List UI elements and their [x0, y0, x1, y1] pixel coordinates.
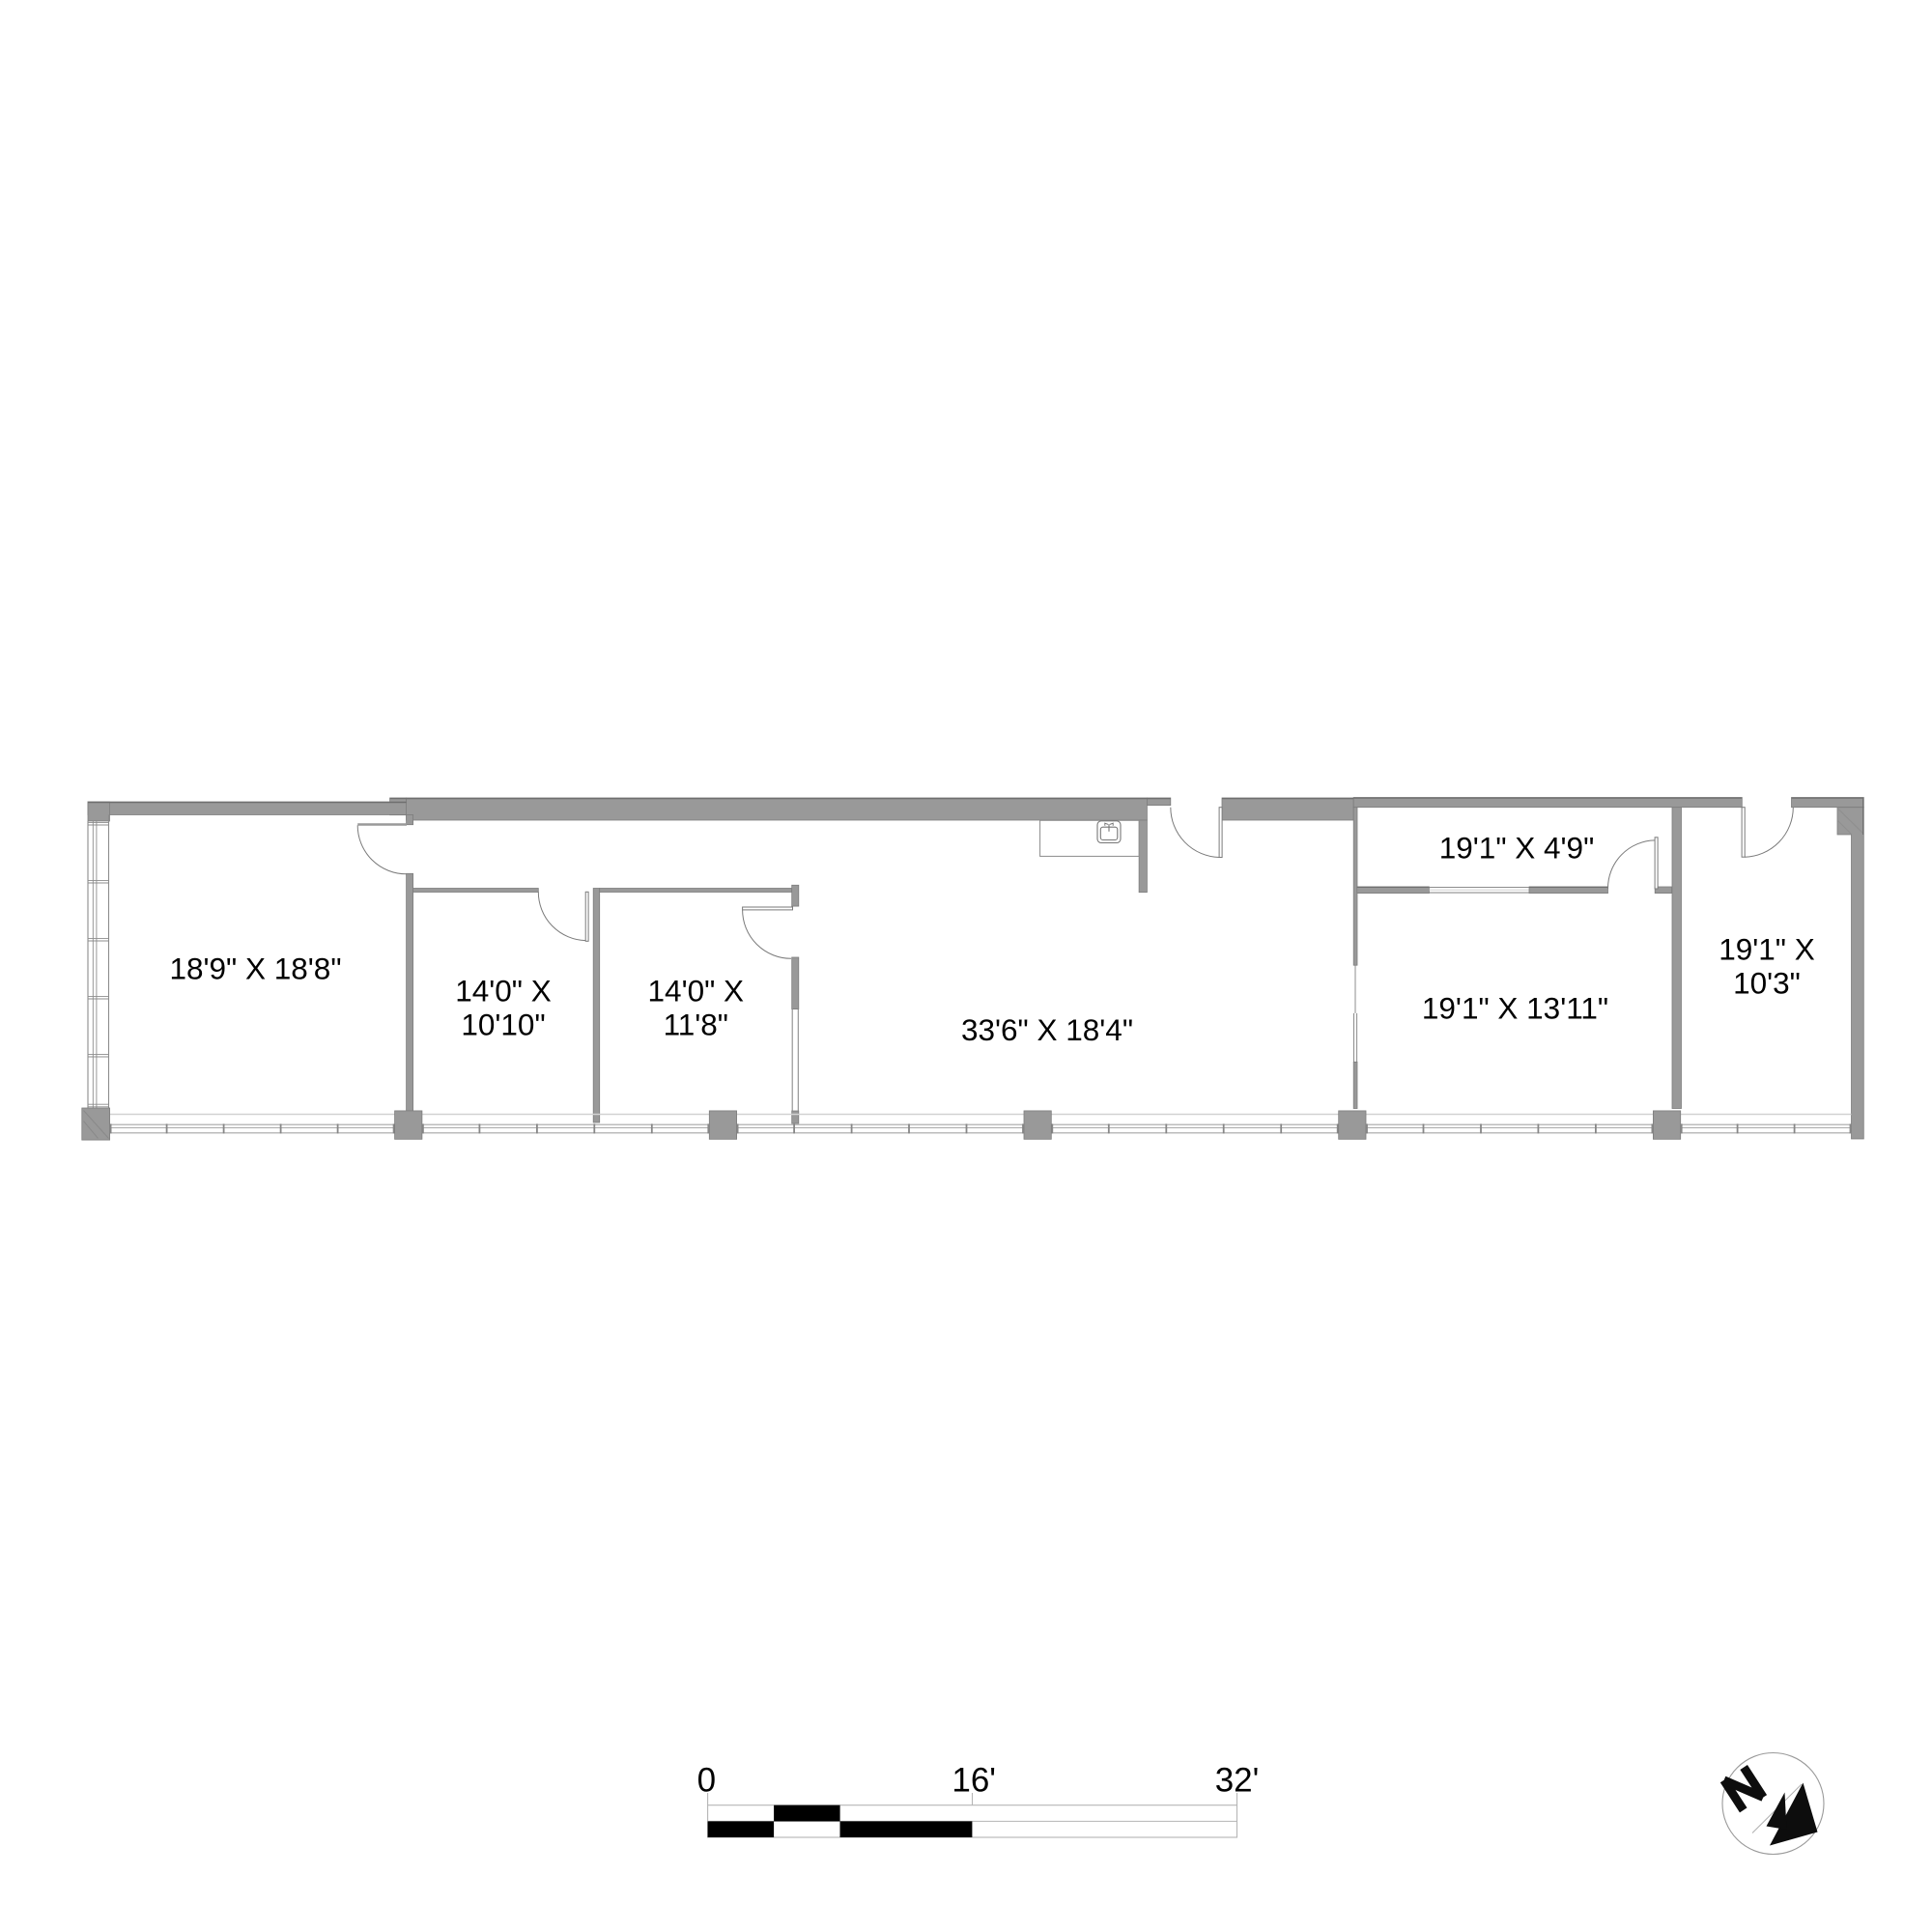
svg-text:33'6" X 18'4": 33'6" X 18'4" — [961, 1012, 1133, 1047]
svg-text:10'3": 10'3" — [1733, 966, 1801, 1001]
svg-text:11'8": 11'8" — [664, 1008, 728, 1042]
svg-text:19'1" X: 19'1" X — [1719, 931, 1815, 966]
svg-text:14'0" X: 14'0" X — [455, 973, 552, 1008]
svg-text:10'10": 10'10" — [461, 1008, 545, 1042]
svg-text:19'1" X 13'11": 19'1" X 13'11" — [1422, 991, 1608, 1026]
svg-text:14'0" X: 14'0" X — [648, 973, 745, 1008]
svg-text:19'1" X 4'9": 19'1" X 4'9" — [1439, 830, 1595, 865]
svg-text:18'9" X 18'8": 18'9" X 18'8" — [169, 951, 341, 985]
svg-text:16': 16' — [952, 1762, 996, 1800]
svg-text:0: 0 — [697, 1762, 716, 1800]
svg-text:32': 32' — [1215, 1762, 1260, 1800]
